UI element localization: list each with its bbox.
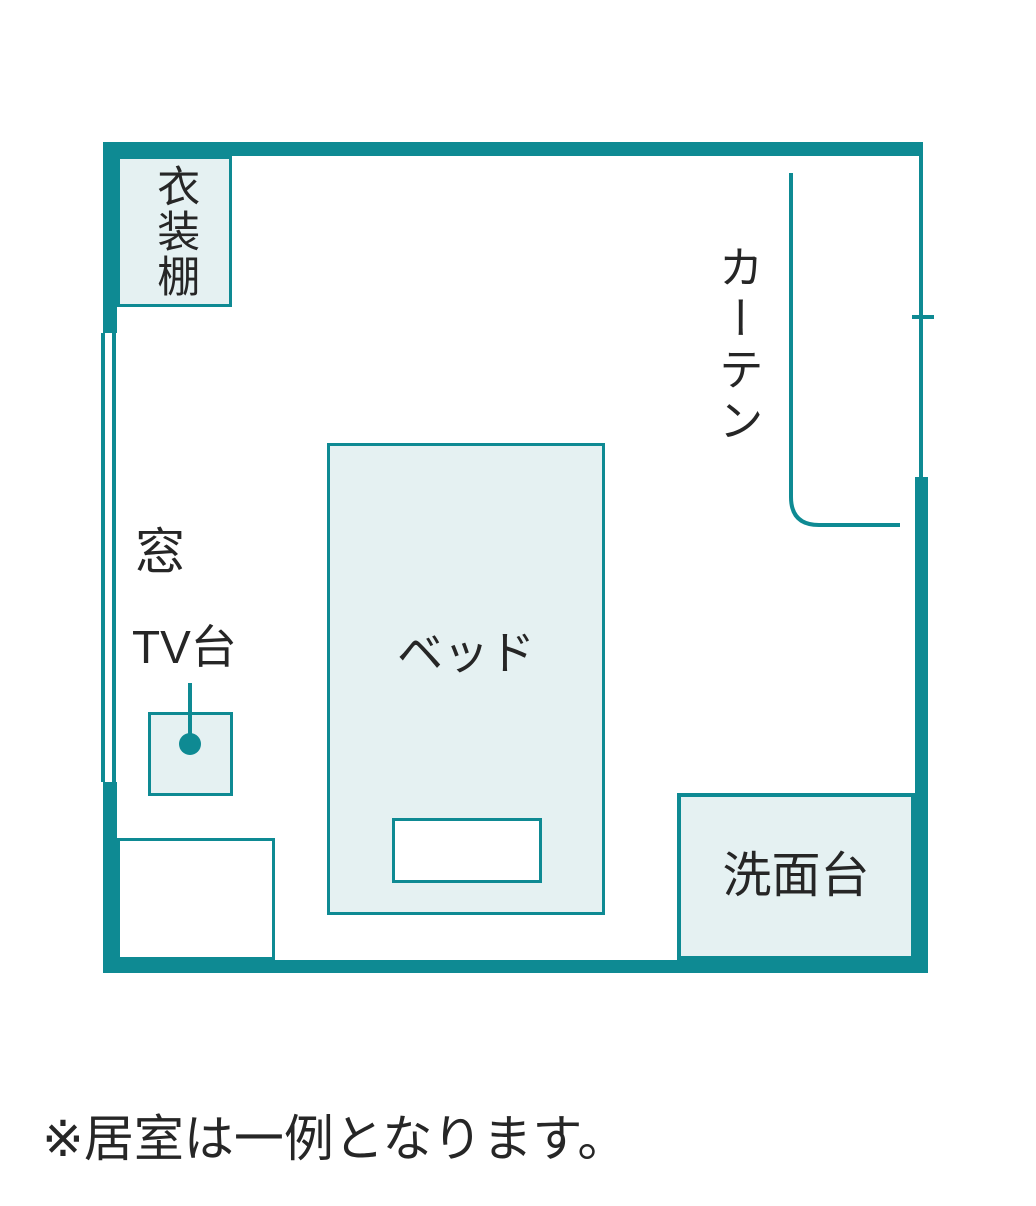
curtain-label: カーテン	[712, 244, 761, 448]
tv-stand-label: TV台	[132, 623, 237, 673]
floor-plan: 衣装棚 ベッド 洗面台 カーテン 窓 TV台 ※居室は一例となります。	[0, 0, 1036, 1206]
window-label: 窓	[135, 525, 185, 579]
note-text: ※居室は一例となります。	[42, 1112, 627, 1166]
curtain-rail-line	[0, 0, 1036, 1206]
